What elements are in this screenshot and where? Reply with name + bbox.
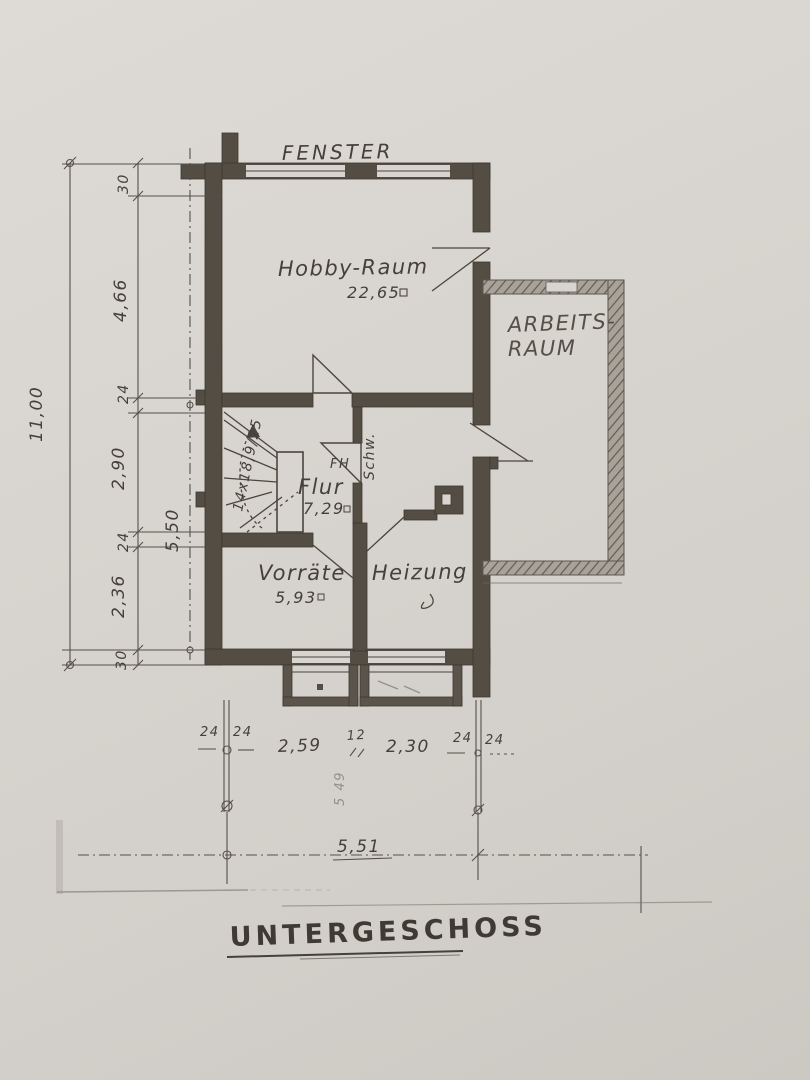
- dim-left-5: 2,36: [109, 574, 129, 618]
- light-well-1-right: [349, 665, 358, 706]
- light-well-2-bottom: [360, 697, 462, 706]
- light-well-2-scribble: [378, 681, 398, 689]
- left-dimension-chains: [62, 148, 222, 671]
- sheet-corner-band: [56, 820, 63, 894]
- right-wall-lower: [473, 457, 490, 697]
- annotation-fh: FH: [330, 457, 350, 472]
- dim-bottom-width: 5,51: [337, 837, 381, 857]
- sqm-symbol: [344, 506, 350, 512]
- dim-left-2: 24: [116, 383, 132, 404]
- dim-mini-slash: [358, 749, 364, 757]
- door-annex-swing: [470, 423, 528, 461]
- annotation-faint: 5 49: [333, 771, 348, 806]
- room-label-flur: Flur: [298, 475, 344, 499]
- text-labels: FENSTER Hobby-Raum 22,65 ARBEITS- RAUM F…: [27, 139, 617, 953]
- left-wall-nib-lower: [196, 492, 205, 507]
- light-wells: [283, 665, 462, 706]
- top-wall-left-extension: [181, 164, 207, 179]
- light-well-2-right: [453, 665, 462, 706]
- wall-hobby-south-left: [222, 393, 313, 407]
- dim-overall-height: 11,00: [27, 386, 47, 442]
- chimney-flue-opening: [442, 494, 451, 505]
- dim-bottom-right-b: 24: [485, 733, 505, 748]
- room-area-vorraete: 5,93: [275, 588, 317, 607]
- right-wall-upper: [473, 163, 490, 232]
- annex-window: [546, 282, 577, 292]
- room-label-arbeit-line2: RAUM: [508, 336, 577, 361]
- wall-hobby-south-right: [352, 393, 473, 407]
- wall-heizung-north: [404, 510, 437, 520]
- stairs-label: 14x18,9/25: [230, 417, 265, 513]
- light-well-1-mark: [317, 684, 323, 690]
- left-wall: [205, 163, 222, 665]
- wall-flur-vorraete: [222, 533, 313, 547]
- sheet-line-under-plan: [282, 902, 712, 906]
- right-wall-door-stub: [490, 457, 498, 469]
- wall-vorraete-heizung: [353, 523, 367, 651]
- dim-left-4: 24: [116, 531, 132, 552]
- scanned-floor-plan-sheet: FENSTER Hobby-Raum 22,65 ARBEITS- RAUM F…: [0, 0, 810, 1080]
- sqm-symbol: [400, 289, 407, 296]
- dim-left-3: 2,90: [109, 446, 129, 490]
- light-well-2-scribble2: [404, 686, 420, 693]
- heizung-flourish: [421, 594, 433, 608]
- sheet-corner-line: [57, 890, 248, 892]
- wall-stub-above-top: [222, 133, 238, 165]
- sqm-symbol: [318, 594, 324, 600]
- room-label-vorraete: Vorräte: [258, 561, 346, 585]
- doors: [313, 248, 533, 578]
- partition-schw-upper: [353, 407, 362, 443]
- dim-bottom-seg2: 2,30: [386, 737, 430, 757]
- dim-bottom-seg1: 2,59: [277, 735, 322, 757]
- room-label-hobby: Hobby-Raum: [278, 254, 429, 281]
- dim-5-51-underline: [333, 858, 392, 860]
- partition-schw-lower: [353, 483, 362, 523]
- dim-bottom-left-a: 24: [200, 725, 220, 740]
- annotation-schw: Schw.: [362, 432, 378, 480]
- room-area-hobby: 22,65: [347, 283, 400, 302]
- door-heizung-swing: [366, 517, 404, 552]
- room-label-heizung: Heizung: [372, 559, 468, 585]
- dim-bottom-mid: 12: [346, 728, 367, 744]
- room-area-flur: 7,29: [303, 499, 345, 518]
- dim-left-6: 30: [114, 649, 130, 670]
- floor-plan-drawing: FENSTER Hobby-Raum 22,65 ARBEITS- RAUM F…: [0, 0, 810, 1080]
- title-underline-2: [300, 955, 460, 959]
- plan-title: UNTERGESCHOSS: [229, 911, 547, 953]
- dim-bottom-right-a: 24: [453, 731, 473, 746]
- light-well-1-bottom: [283, 697, 358, 706]
- room-label-arbeit-line1: ARBEITS-: [505, 309, 616, 337]
- dim-inner-height: 5,50: [163, 508, 183, 552]
- dim-bottom-left-b: 24: [233, 725, 253, 740]
- dim-mini-slash: [350, 748, 356, 756]
- annex-bottom-wall: [483, 561, 624, 575]
- door-hobby-south-leaf: [313, 355, 352, 393]
- dim-left-1: 4,66: [111, 278, 131, 322]
- dim-slash: [221, 800, 233, 812]
- dim-left-0: 30: [116, 173, 132, 194]
- window-band-label: FENSTER: [282, 139, 394, 165]
